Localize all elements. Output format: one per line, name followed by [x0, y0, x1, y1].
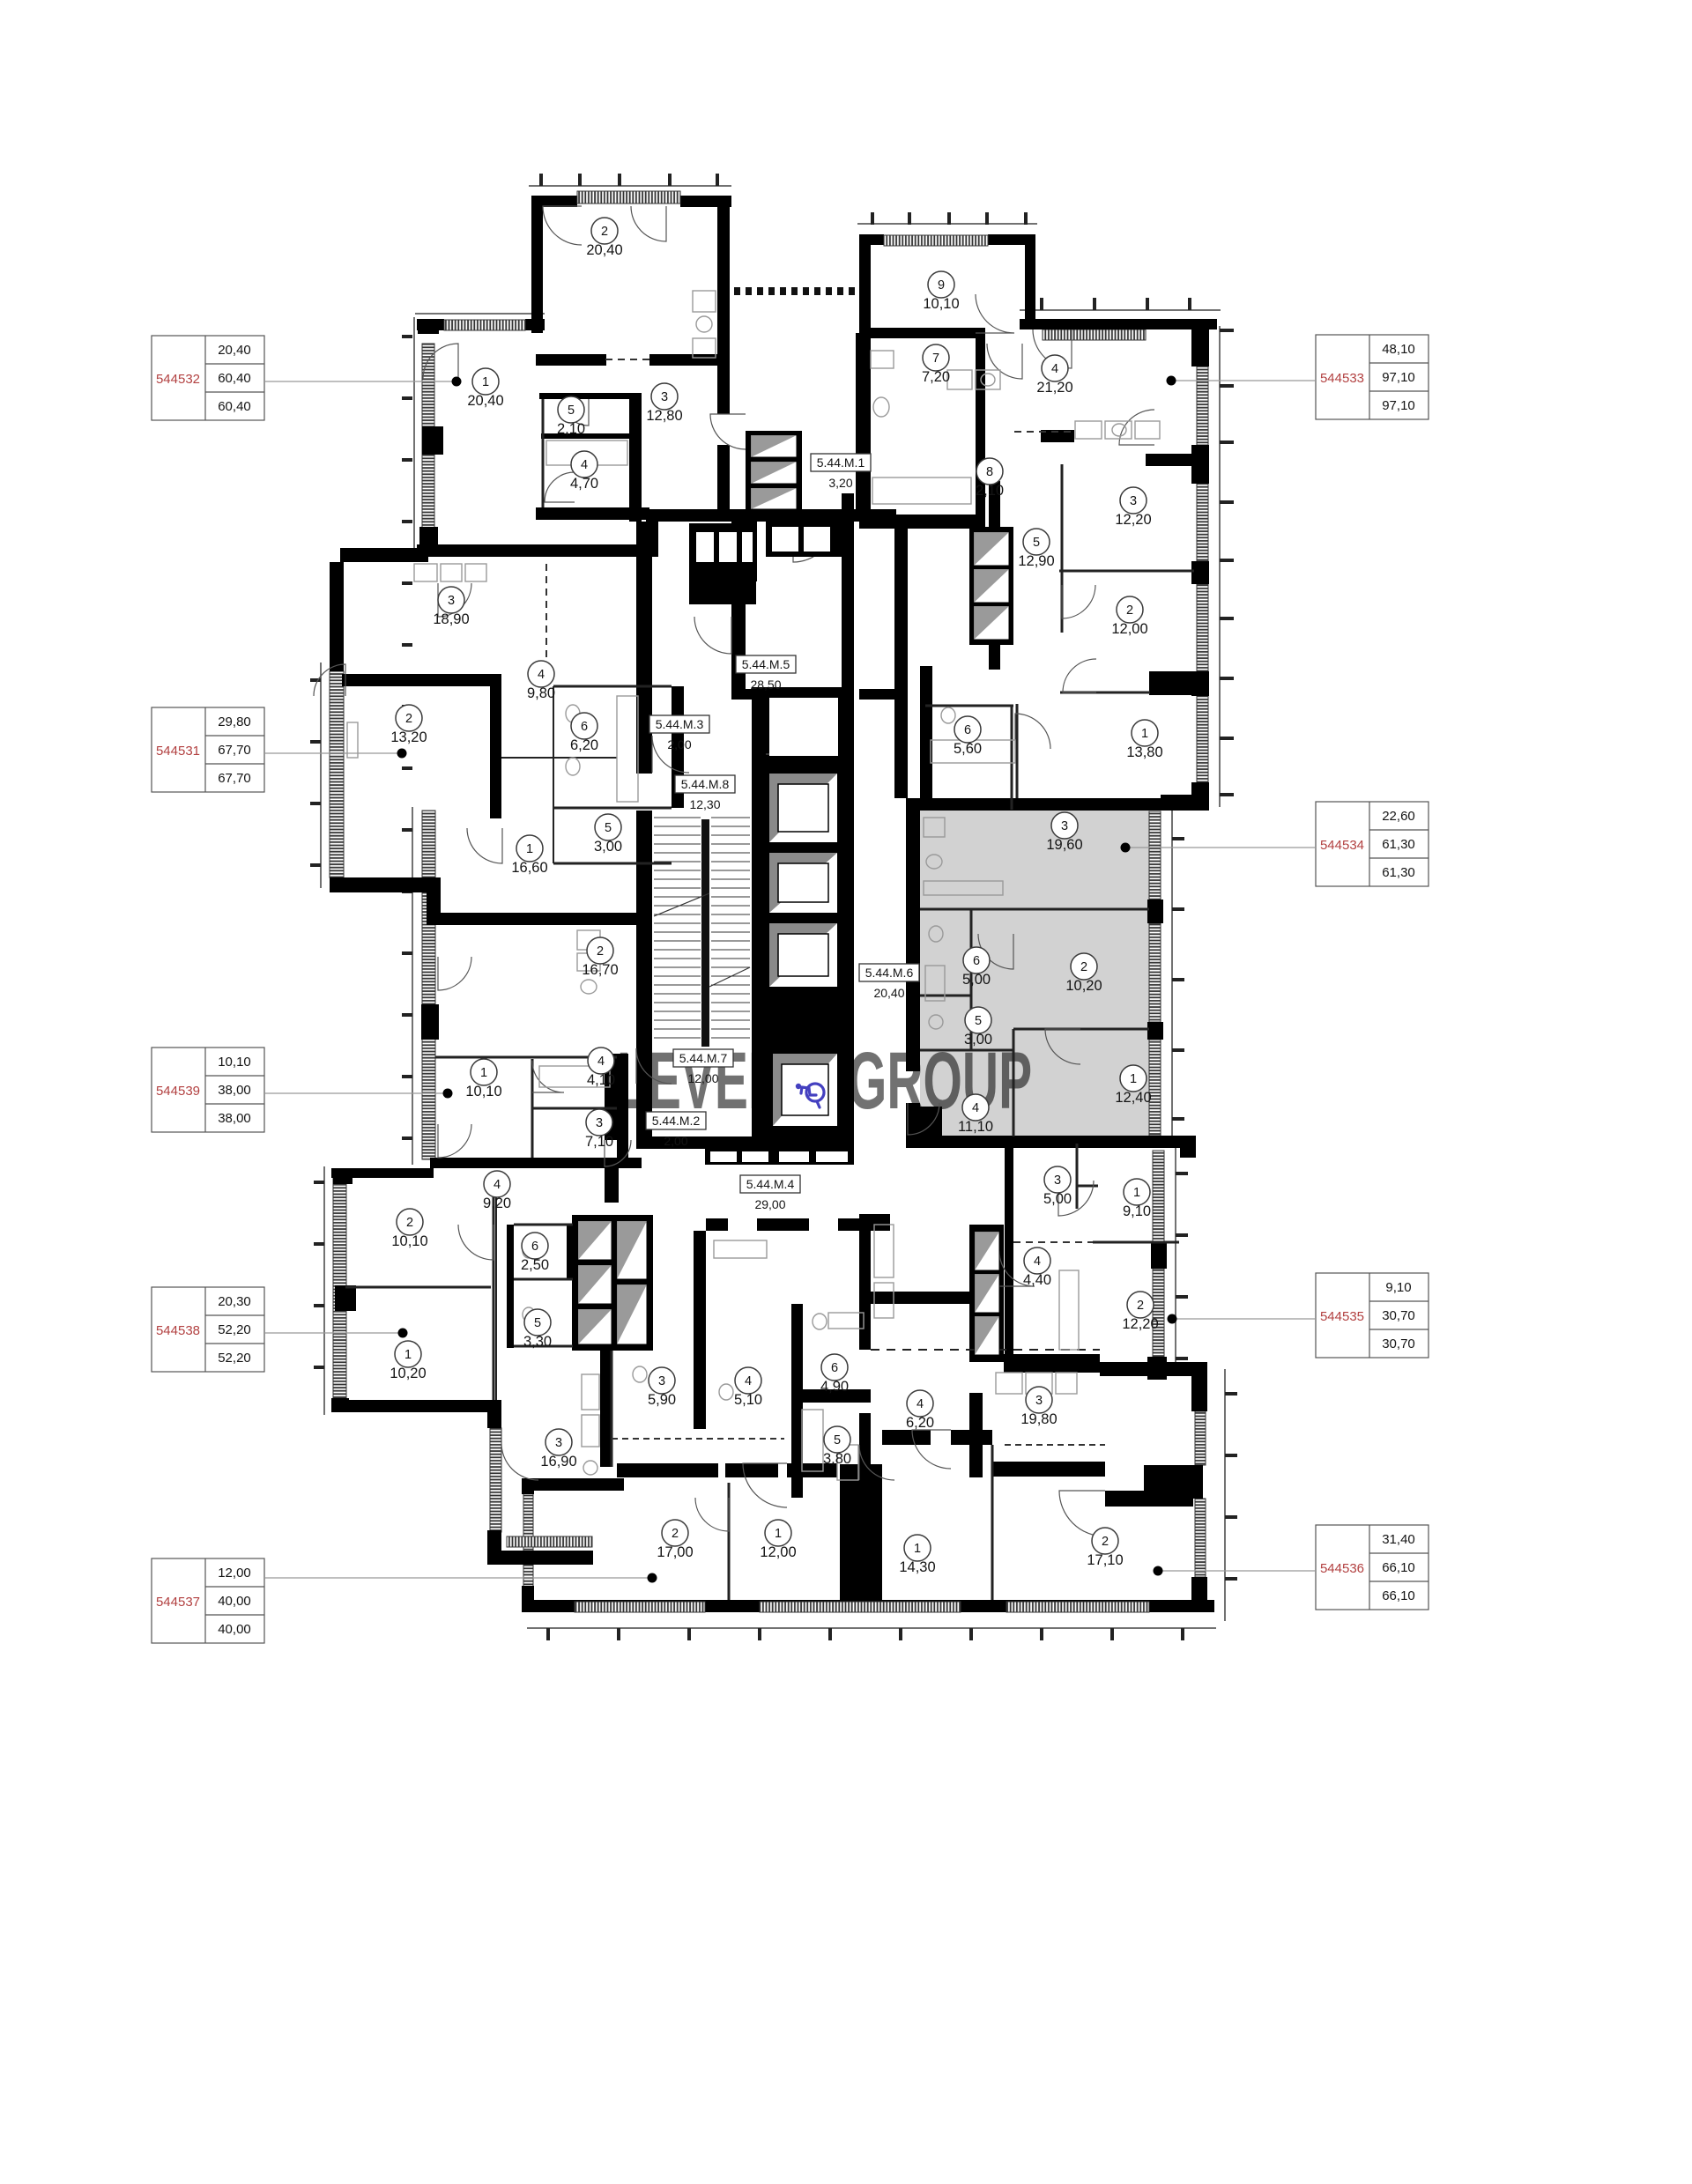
svg-text:16,90: 16,90	[540, 1454, 576, 1470]
svg-text:3: 3	[596, 1116, 603, 1130]
svg-text:5,00: 5,00	[962, 972, 991, 988]
svg-text:8: 8	[986, 465, 993, 479]
svg-text:30,70: 30,70	[1382, 1308, 1415, 1323]
svg-text:10,10: 10,10	[391, 1233, 427, 1249]
svg-text:3,80: 3,80	[823, 1451, 851, 1467]
svg-text:4: 4	[581, 458, 588, 472]
svg-text:18,90: 18,90	[433, 611, 469, 627]
svg-text:6: 6	[973, 954, 980, 968]
svg-text:16,70: 16,70	[582, 962, 618, 978]
svg-text:20,40: 20,40	[586, 242, 622, 258]
svg-text:13,80: 13,80	[1126, 744, 1162, 760]
svg-text:1: 1	[1141, 727, 1148, 741]
svg-text:66,10: 66,10	[1382, 1588, 1415, 1603]
svg-text:4: 4	[538, 668, 545, 682]
svg-text:12,00: 12,00	[218, 1566, 251, 1581]
svg-text:7,10: 7,10	[585, 1134, 613, 1150]
svg-text:1: 1	[775, 1527, 782, 1541]
svg-text:30,70: 30,70	[1382, 1336, 1415, 1351]
svg-text:29,80: 29,80	[218, 714, 251, 729]
svg-text:2: 2	[406, 1216, 413, 1230]
svg-text:20,40: 20,40	[218, 343, 251, 358]
svg-text:2,10: 2,10	[557, 421, 585, 437]
svg-text:10,20: 10,20	[390, 1366, 426, 1381]
svg-text:544539: 544539	[156, 1084, 200, 1099]
svg-text:12,90: 12,90	[1018, 553, 1054, 569]
svg-text:2: 2	[1137, 1299, 1144, 1313]
svg-text:5.44.M.7: 5.44.M.7	[679, 1051, 728, 1065]
svg-text:2: 2	[672, 1527, 679, 1541]
svg-text:4: 4	[972, 1101, 979, 1115]
svg-text:10,10: 10,10	[923, 296, 959, 312]
svg-text:52,20: 52,20	[218, 1351, 251, 1366]
svg-text:2: 2	[405, 712, 412, 726]
svg-text:544535: 544535	[1320, 1309, 1364, 1324]
svg-text:3: 3	[448, 594, 455, 608]
svg-text:5.44.M.1: 5.44.M.1	[817, 455, 865, 470]
svg-text:97,10: 97,10	[1382, 398, 1415, 413]
svg-text:67,70: 67,70	[218, 771, 251, 786]
svg-text:2: 2	[597, 944, 604, 959]
svg-text:9: 9	[938, 278, 945, 292]
svg-text:12,20: 12,20	[1115, 512, 1151, 528]
svg-text:5: 5	[605, 821, 612, 835]
svg-text:5: 5	[975, 1014, 982, 1028]
svg-text:29,00: 29,00	[754, 1197, 785, 1211]
svg-text:9,80: 9,80	[527, 685, 555, 701]
svg-text:2,00: 2,00	[664, 1134, 687, 1148]
svg-text:1: 1	[480, 1066, 487, 1080]
svg-text:2: 2	[601, 225, 608, 239]
svg-text:38,00: 38,00	[218, 1111, 251, 1126]
svg-text:3,00: 3,00	[594, 839, 622, 855]
svg-text:31,40: 31,40	[1382, 1532, 1415, 1547]
svg-text:3,30: 3,30	[523, 1334, 552, 1350]
svg-text:9,20: 9,20	[483, 1196, 511, 1211]
svg-text:5.44.M.2: 5.44.M.2	[652, 1114, 701, 1128]
svg-text:28,50: 28,50	[750, 677, 781, 692]
svg-text:4: 4	[1034, 1255, 1041, 1269]
svg-text:5,90: 5,90	[648, 1392, 676, 1408]
svg-text:1: 1	[482, 375, 489, 389]
svg-text:6: 6	[831, 1361, 838, 1375]
svg-text:544534: 544534	[1320, 838, 1364, 853]
svg-text:4,90: 4,90	[820, 1379, 849, 1395]
svg-text:38,00: 38,00	[218, 1083, 251, 1098]
svg-text:1: 1	[526, 842, 533, 856]
svg-text:17,10: 17,10	[1087, 1552, 1123, 1568]
svg-text:5: 5	[834, 1433, 841, 1447]
svg-text:1: 1	[914, 1542, 921, 1556]
svg-text:544533: 544533	[1320, 371, 1364, 386]
svg-text:544537: 544537	[156, 1595, 200, 1610]
svg-text:67,70: 67,70	[218, 743, 251, 758]
svg-text:2,10: 2,10	[976, 483, 1004, 499]
svg-text:5.44.M.3: 5.44.M.3	[656, 717, 704, 731]
svg-text:19,60: 19,60	[1046, 837, 1082, 853]
svg-text:3: 3	[1061, 819, 1068, 833]
svg-text:3: 3	[658, 1374, 665, 1388]
svg-text:9,10: 9,10	[1385, 1280, 1411, 1295]
svg-text:3: 3	[1130, 494, 1137, 508]
svg-text:4: 4	[493, 1178, 501, 1192]
svg-text:5,10: 5,10	[734, 1392, 762, 1408]
svg-text:12,00: 12,00	[687, 1071, 718, 1085]
svg-text:3: 3	[1035, 1394, 1043, 1408]
svg-text:12,00: 12,00	[1111, 621, 1147, 637]
svg-text:5.44.M.5: 5.44.M.5	[742, 657, 790, 671]
svg-text:6,20: 6,20	[570, 737, 598, 753]
svg-text:10,10: 10,10	[218, 1055, 251, 1070]
svg-text:61,30: 61,30	[1382, 865, 1415, 880]
svg-text:3,20: 3,20	[828, 476, 852, 490]
svg-text:10,20: 10,20	[1065, 978, 1102, 994]
svg-text:6: 6	[964, 723, 971, 737]
svg-text:5: 5	[1033, 536, 1040, 550]
svg-text:544532: 544532	[156, 372, 200, 387]
svg-text:544536: 544536	[1320, 1561, 1364, 1576]
svg-text:60,40: 60,40	[218, 371, 251, 386]
svg-text:5,00: 5,00	[1043, 1191, 1072, 1207]
svg-text:4: 4	[916, 1397, 924, 1411]
svg-text:2: 2	[1126, 603, 1133, 618]
svg-text:14,30: 14,30	[899, 1559, 935, 1575]
svg-text:3: 3	[555, 1436, 562, 1450]
svg-text:20,40: 20,40	[467, 393, 503, 409]
svg-text:1: 1	[1133, 1186, 1140, 1200]
svg-text:7: 7	[932, 352, 939, 366]
svg-text:544538: 544538	[156, 1323, 200, 1338]
svg-text:16,60: 16,60	[511, 860, 547, 876]
svg-text:2,50: 2,50	[521, 1257, 549, 1273]
svg-text:2: 2	[1080, 960, 1087, 974]
svg-text:4,40: 4,40	[1023, 1272, 1051, 1288]
svg-text:544531: 544531	[156, 744, 200, 759]
svg-text:3: 3	[661, 390, 668, 404]
svg-text:7,20: 7,20	[922, 369, 950, 385]
svg-text:60,40: 60,40	[218, 399, 251, 414]
svg-text:9,10: 9,10	[1123, 1203, 1151, 1219]
svg-text:2: 2	[1102, 1535, 1109, 1549]
svg-text:4: 4	[1051, 362, 1058, 376]
svg-text:20,30: 20,30	[218, 1294, 251, 1309]
svg-text:12,00: 12,00	[760, 1544, 796, 1560]
svg-text:10,10: 10,10	[465, 1084, 501, 1099]
svg-text:4,70: 4,70	[570, 476, 598, 492]
svg-text:61,30: 61,30	[1382, 837, 1415, 852]
svg-text:20,40: 20,40	[873, 986, 904, 1000]
svg-text:5.44.M.6: 5.44.M.6	[865, 966, 914, 980]
svg-text:4: 4	[597, 1055, 605, 1069]
svg-text:3: 3	[1054, 1173, 1061, 1188]
svg-text:3,00: 3,00	[964, 1032, 992, 1048]
svg-text:1: 1	[404, 1348, 412, 1362]
svg-text:5: 5	[534, 1316, 541, 1330]
svg-text:5.44.M.8: 5.44.M.8	[681, 777, 730, 791]
svg-text:1: 1	[1130, 1072, 1137, 1086]
svg-text:6: 6	[581, 720, 588, 734]
svg-text:12,30: 12,30	[689, 797, 720, 811]
svg-text:17,00: 17,00	[657, 1544, 693, 1560]
svg-text:13,20: 13,20	[390, 729, 427, 745]
svg-text:52,20: 52,20	[218, 1322, 251, 1337]
svg-text:11,10: 11,10	[958, 1119, 993, 1135]
svg-text:5,60: 5,60	[954, 741, 982, 757]
svg-text:40,00: 40,00	[218, 1622, 251, 1637]
svg-text:5: 5	[568, 403, 575, 418]
svg-text:12,80: 12,80	[646, 408, 682, 424]
svg-text:19,80: 19,80	[1020, 1411, 1057, 1427]
svg-text:97,10: 97,10	[1382, 370, 1415, 385]
svg-text:4: 4	[745, 1374, 752, 1388]
svg-text:40,00: 40,00	[218, 1594, 251, 1609]
svg-text:2,00: 2,00	[667, 737, 691, 751]
svg-text:48,10: 48,10	[1382, 342, 1415, 357]
svg-text:4,10: 4,10	[587, 1072, 615, 1088]
svg-text:12,20: 12,20	[1122, 1316, 1158, 1332]
svg-text:6,20: 6,20	[906, 1415, 934, 1431]
svg-text:6: 6	[531, 1240, 538, 1254]
svg-text:21,20: 21,20	[1036, 380, 1072, 396]
svg-text:5.44.M.4: 5.44.M.4	[746, 1177, 795, 1191]
svg-text:66,10: 66,10	[1382, 1560, 1415, 1575]
svg-text:12,40: 12,40	[1115, 1090, 1151, 1106]
svg-text:22,60: 22,60	[1382, 809, 1415, 824]
